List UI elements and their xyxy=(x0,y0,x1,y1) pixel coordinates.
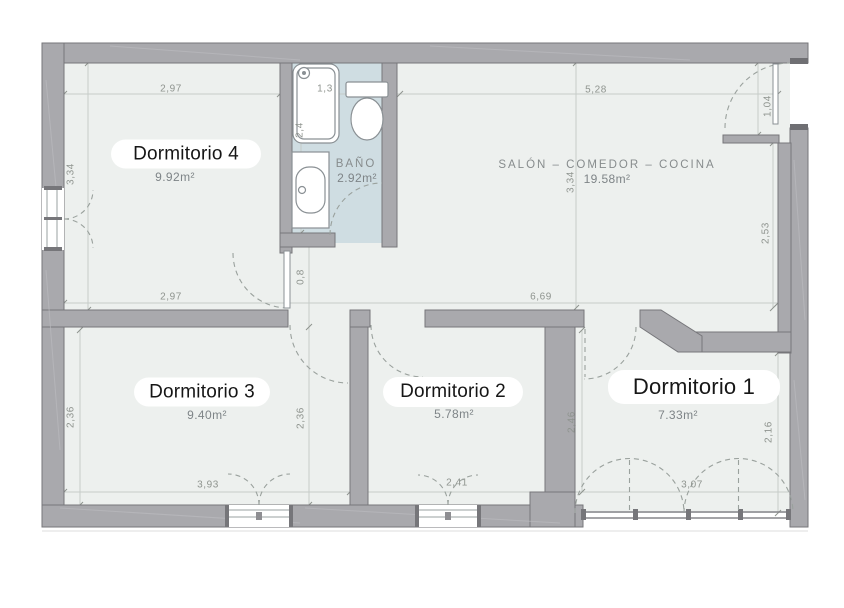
dim-d3-right: 2,36 xyxy=(296,407,307,429)
floor-base xyxy=(64,63,790,513)
area-dormitorio-2: 5.78m² xyxy=(434,407,474,421)
dim-d2-bottom: 2,41 xyxy=(446,478,468,489)
room-label-bano: BAÑO xyxy=(336,158,377,170)
dim-d1-bottom: 3,07 xyxy=(681,480,703,491)
dim-entry: 1,04 xyxy=(763,95,774,117)
dim-d4-top: 2,97 xyxy=(160,84,182,95)
floor-plan-drawing xyxy=(0,0,844,608)
dim-bath-left: 2,4 xyxy=(295,122,306,138)
window-dormitorio3 xyxy=(225,505,293,527)
dim-d3-left: 2,36 xyxy=(66,406,77,428)
window-dormitorio2 xyxy=(415,505,481,527)
dim-d1-right: 2,16 xyxy=(764,421,775,443)
room-label-dormitorio-1: Dormitorio 1 xyxy=(608,370,780,404)
floor-plan: Dormitorio 4 Dormitorio 3 Dormitorio 2 D… xyxy=(0,0,844,608)
dim-hall: 0,8 xyxy=(296,269,307,285)
dim-d4-left: 3,34 xyxy=(66,163,77,185)
dim-salon-bottom: 6,69 xyxy=(530,292,552,303)
room-label-dormitorio-3: Dormitorio 3 xyxy=(134,378,270,407)
dim-salon-right: 2,53 xyxy=(761,222,772,244)
room-label-dormitorio-2: Dormitorio 2 xyxy=(383,377,523,407)
dim-salon-mid: 3,34 xyxy=(566,171,577,193)
dim-salon-top: 5,28 xyxy=(585,85,607,96)
entrance-jambs xyxy=(790,58,808,130)
door-leaf-dormitorio4 xyxy=(284,251,290,308)
area-salon: 19.58m² xyxy=(584,172,631,186)
dim-d2-right: 2,46 xyxy=(567,411,578,433)
window-dormitorio4 xyxy=(42,186,64,251)
dim-d4-bottom: 2,97 xyxy=(160,292,182,303)
sink xyxy=(292,152,329,228)
dim-d3-bottom: 3,93 xyxy=(197,480,219,491)
room-label-dormitorio-4: Dormitorio 4 xyxy=(111,140,261,169)
area-dormitorio-4: 9.92m² xyxy=(155,170,195,184)
area-dormitorio-1: 7.33m² xyxy=(658,408,698,422)
area-bano: 2.92m² xyxy=(337,171,377,185)
dim-bath-top: 1,3 xyxy=(317,84,333,95)
door-leaf-entrance xyxy=(773,64,778,124)
room-label-salon: SALÓN – COMEDOR – COCINA xyxy=(498,159,715,171)
area-dormitorio-3: 9.40m² xyxy=(187,408,227,422)
